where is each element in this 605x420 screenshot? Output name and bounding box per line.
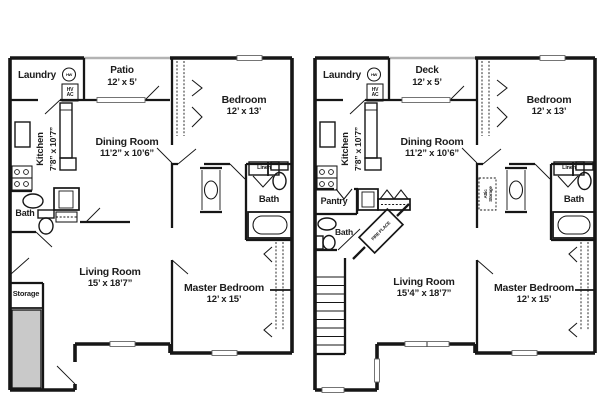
door-swings xyxy=(338,86,550,274)
room-label-bath-upper-left: Bath xyxy=(259,194,279,206)
linen-label-right: Linen xyxy=(562,165,576,171)
bathtub-icon xyxy=(558,216,590,234)
room-dims: 12’ x 13’ xyxy=(527,106,572,118)
water-heater-icon xyxy=(510,181,523,199)
room-label-laundry-left: Laundry xyxy=(18,70,56,82)
floorplan-canvas: Laundry HW HV AC Patio 12’ x 5’ Bedroom … xyxy=(0,0,605,420)
room-dims: 12’ x 15’ xyxy=(184,294,264,306)
room-label-bedroom-right: Bedroom 12’ x 13’ xyxy=(527,94,572,118)
window xyxy=(97,98,145,103)
room-label-dining-right: Dining Room 11’2” x 10’6” xyxy=(400,136,463,160)
room-label-living-left: Living Room 15’ x 18’7” xyxy=(79,266,140,290)
room-label-patio: Patio 12’ x 5’ xyxy=(107,65,137,89)
room-label-bath-lower-left: Bath xyxy=(15,207,34,219)
room-dims: 12’ x 13’ xyxy=(222,106,267,118)
window xyxy=(110,342,135,347)
room-name: Dining Room xyxy=(95,136,158,148)
hw-label-left: HW xyxy=(66,73,72,77)
room-dims: 12’ x 5’ xyxy=(107,77,137,89)
room-dims: 12’ x 5’ xyxy=(412,77,442,89)
room-name: Kitchen xyxy=(35,127,47,171)
room-label-pantry: Pantry xyxy=(321,195,348,207)
water-heater-icon xyxy=(205,181,218,199)
room-label-kitchen-right: Kitchen 7’8” x 10’7” xyxy=(340,127,364,171)
toilet-icon xyxy=(38,210,54,218)
room-dims: 11’2” x 10’6” xyxy=(400,148,463,160)
toilet-icon xyxy=(316,236,323,249)
toilet-icon xyxy=(39,218,53,234)
room-label-master-right: Master Bedroom 12’ x 15’ xyxy=(494,282,574,306)
room-name: Master Bedroom xyxy=(494,282,574,294)
room-name: Living Room xyxy=(79,266,140,278)
room-name: Dining Room xyxy=(400,136,463,148)
room-dims: 15’4” x 18’7” xyxy=(393,288,454,300)
window xyxy=(540,56,565,61)
room-dims: 15’ x 18’7” xyxy=(79,278,140,290)
window xyxy=(322,388,344,393)
room-label-bedroom-left: Bedroom 12’ x 13’ xyxy=(222,94,267,118)
room-label-dining-left: Dining Room 11’2” x 10’6” xyxy=(95,136,158,160)
hw-label-right: HW xyxy=(371,73,377,77)
hvac-label-left: HV AC xyxy=(67,88,74,98)
room-label-master-left: Master Bedroom 12’ x 15’ xyxy=(184,282,264,306)
room-name: Kitchen xyxy=(340,127,352,171)
room-name: Patio xyxy=(107,65,137,77)
sink-icon xyxy=(318,218,336,230)
room-name: Master Bedroom xyxy=(184,282,264,294)
room-name: Bedroom xyxy=(222,94,267,106)
stairs-icon xyxy=(315,277,345,345)
ac-line: AC xyxy=(67,93,74,98)
window xyxy=(212,351,237,356)
room-label-living-right: Living Room 15’4” x 18’7” xyxy=(393,276,454,300)
hvac-label-right: HV AC xyxy=(372,88,379,98)
window xyxy=(402,98,450,103)
ac-line: AC xyxy=(372,93,379,98)
room-label-bath-lower-right: Bath xyxy=(335,226,353,238)
storage-shaded-area xyxy=(12,310,41,388)
bathtub-icon xyxy=(253,216,287,234)
linen-label-left: Linen xyxy=(257,165,271,171)
lower-bath-fixtures xyxy=(316,218,336,250)
room-name: Living Room xyxy=(393,276,454,288)
toilet-icon xyxy=(323,236,335,250)
window xyxy=(237,56,262,61)
room-dims: 11’2” x 10’6” xyxy=(95,148,158,160)
walls-linework xyxy=(0,0,605,420)
room-dims: 7’8” x 10’7” xyxy=(352,127,364,171)
sink-icon xyxy=(23,194,43,208)
window xyxy=(512,351,537,356)
room-label-kitchen-left: Kitchen 7’8” x 10’7” xyxy=(35,127,59,171)
room-label-bath-upper-right: Bath xyxy=(564,194,584,206)
room-label-storage: Storage xyxy=(13,288,40,300)
room-dims: 7’8” x 10’7” xyxy=(47,127,59,171)
room-name: Deck xyxy=(412,65,442,77)
attic-storage-label: Attic Storage xyxy=(483,183,493,205)
room-label-laundry-right: Laundry xyxy=(323,70,361,82)
room-dims: 12’ x 15’ xyxy=(494,294,574,306)
room-name: Bedroom xyxy=(527,94,572,106)
window xyxy=(375,359,380,382)
room-label-deck: Deck 12’ x 5’ xyxy=(412,65,442,89)
